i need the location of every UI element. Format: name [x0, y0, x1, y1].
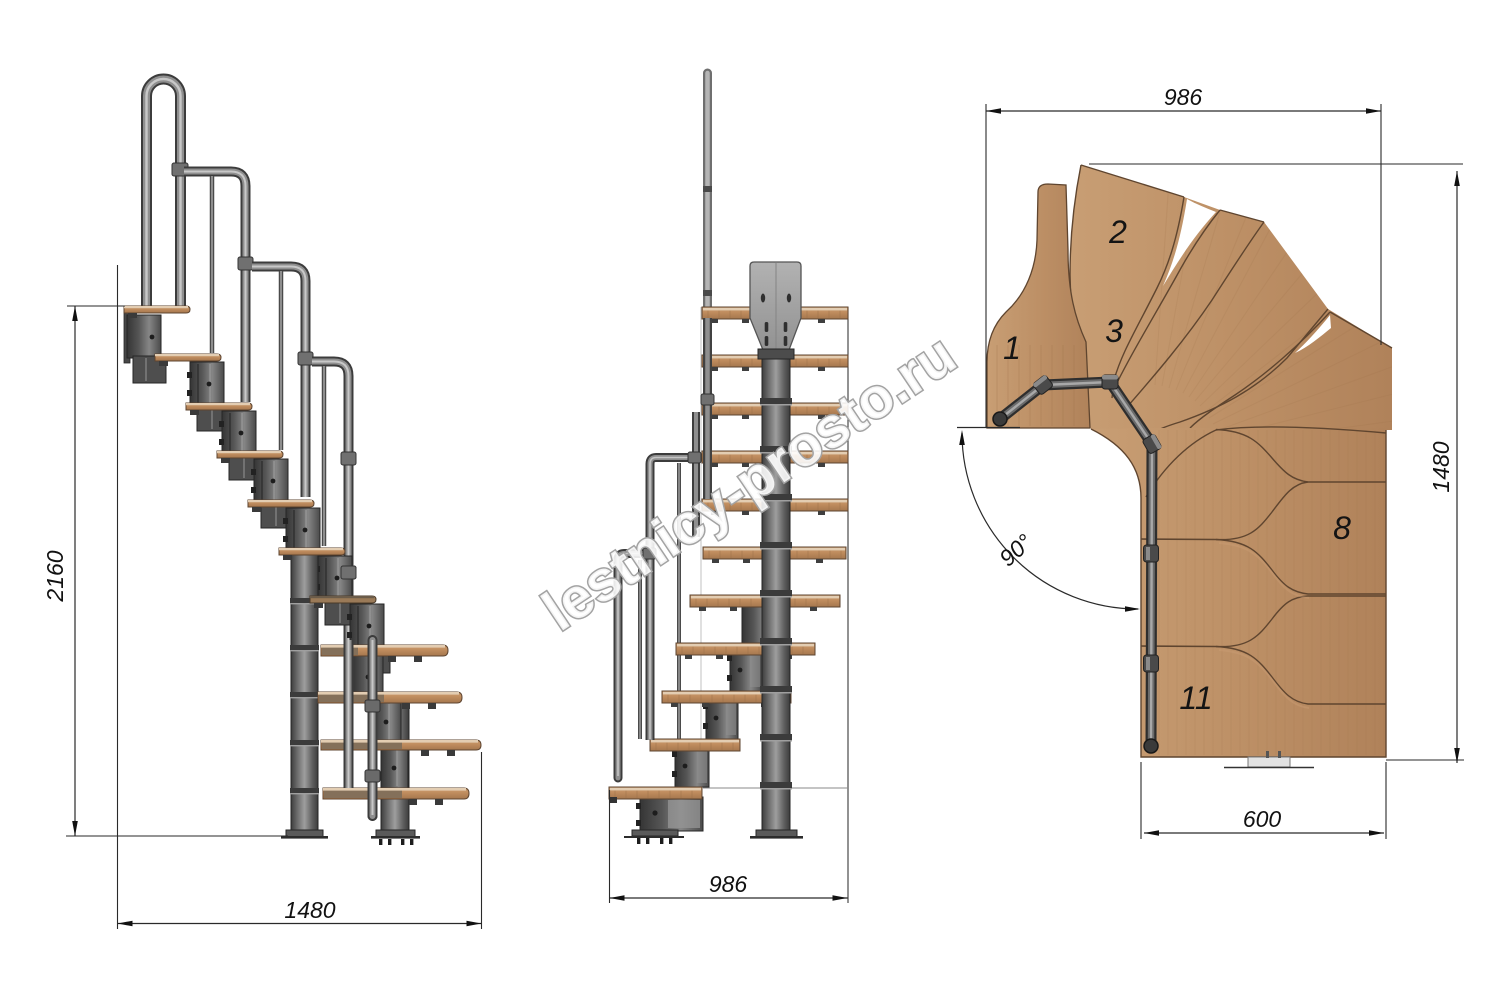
- svg-text:11: 11: [1179, 680, 1212, 716]
- svg-text:1480: 1480: [284, 897, 335, 923]
- svg-text:3: 3: [1105, 313, 1123, 349]
- svg-text:986: 986: [1164, 84, 1203, 110]
- svg-text:2160: 2160: [42, 550, 68, 602]
- svg-text:1480: 1480: [1428, 441, 1454, 492]
- svg-text:600: 600: [1243, 806, 1282, 832]
- svg-text:1: 1: [1003, 330, 1021, 366]
- svg-text:8: 8: [1333, 510, 1351, 546]
- svg-text:2: 2: [1108, 214, 1127, 250]
- svg-text:986: 986: [709, 871, 748, 897]
